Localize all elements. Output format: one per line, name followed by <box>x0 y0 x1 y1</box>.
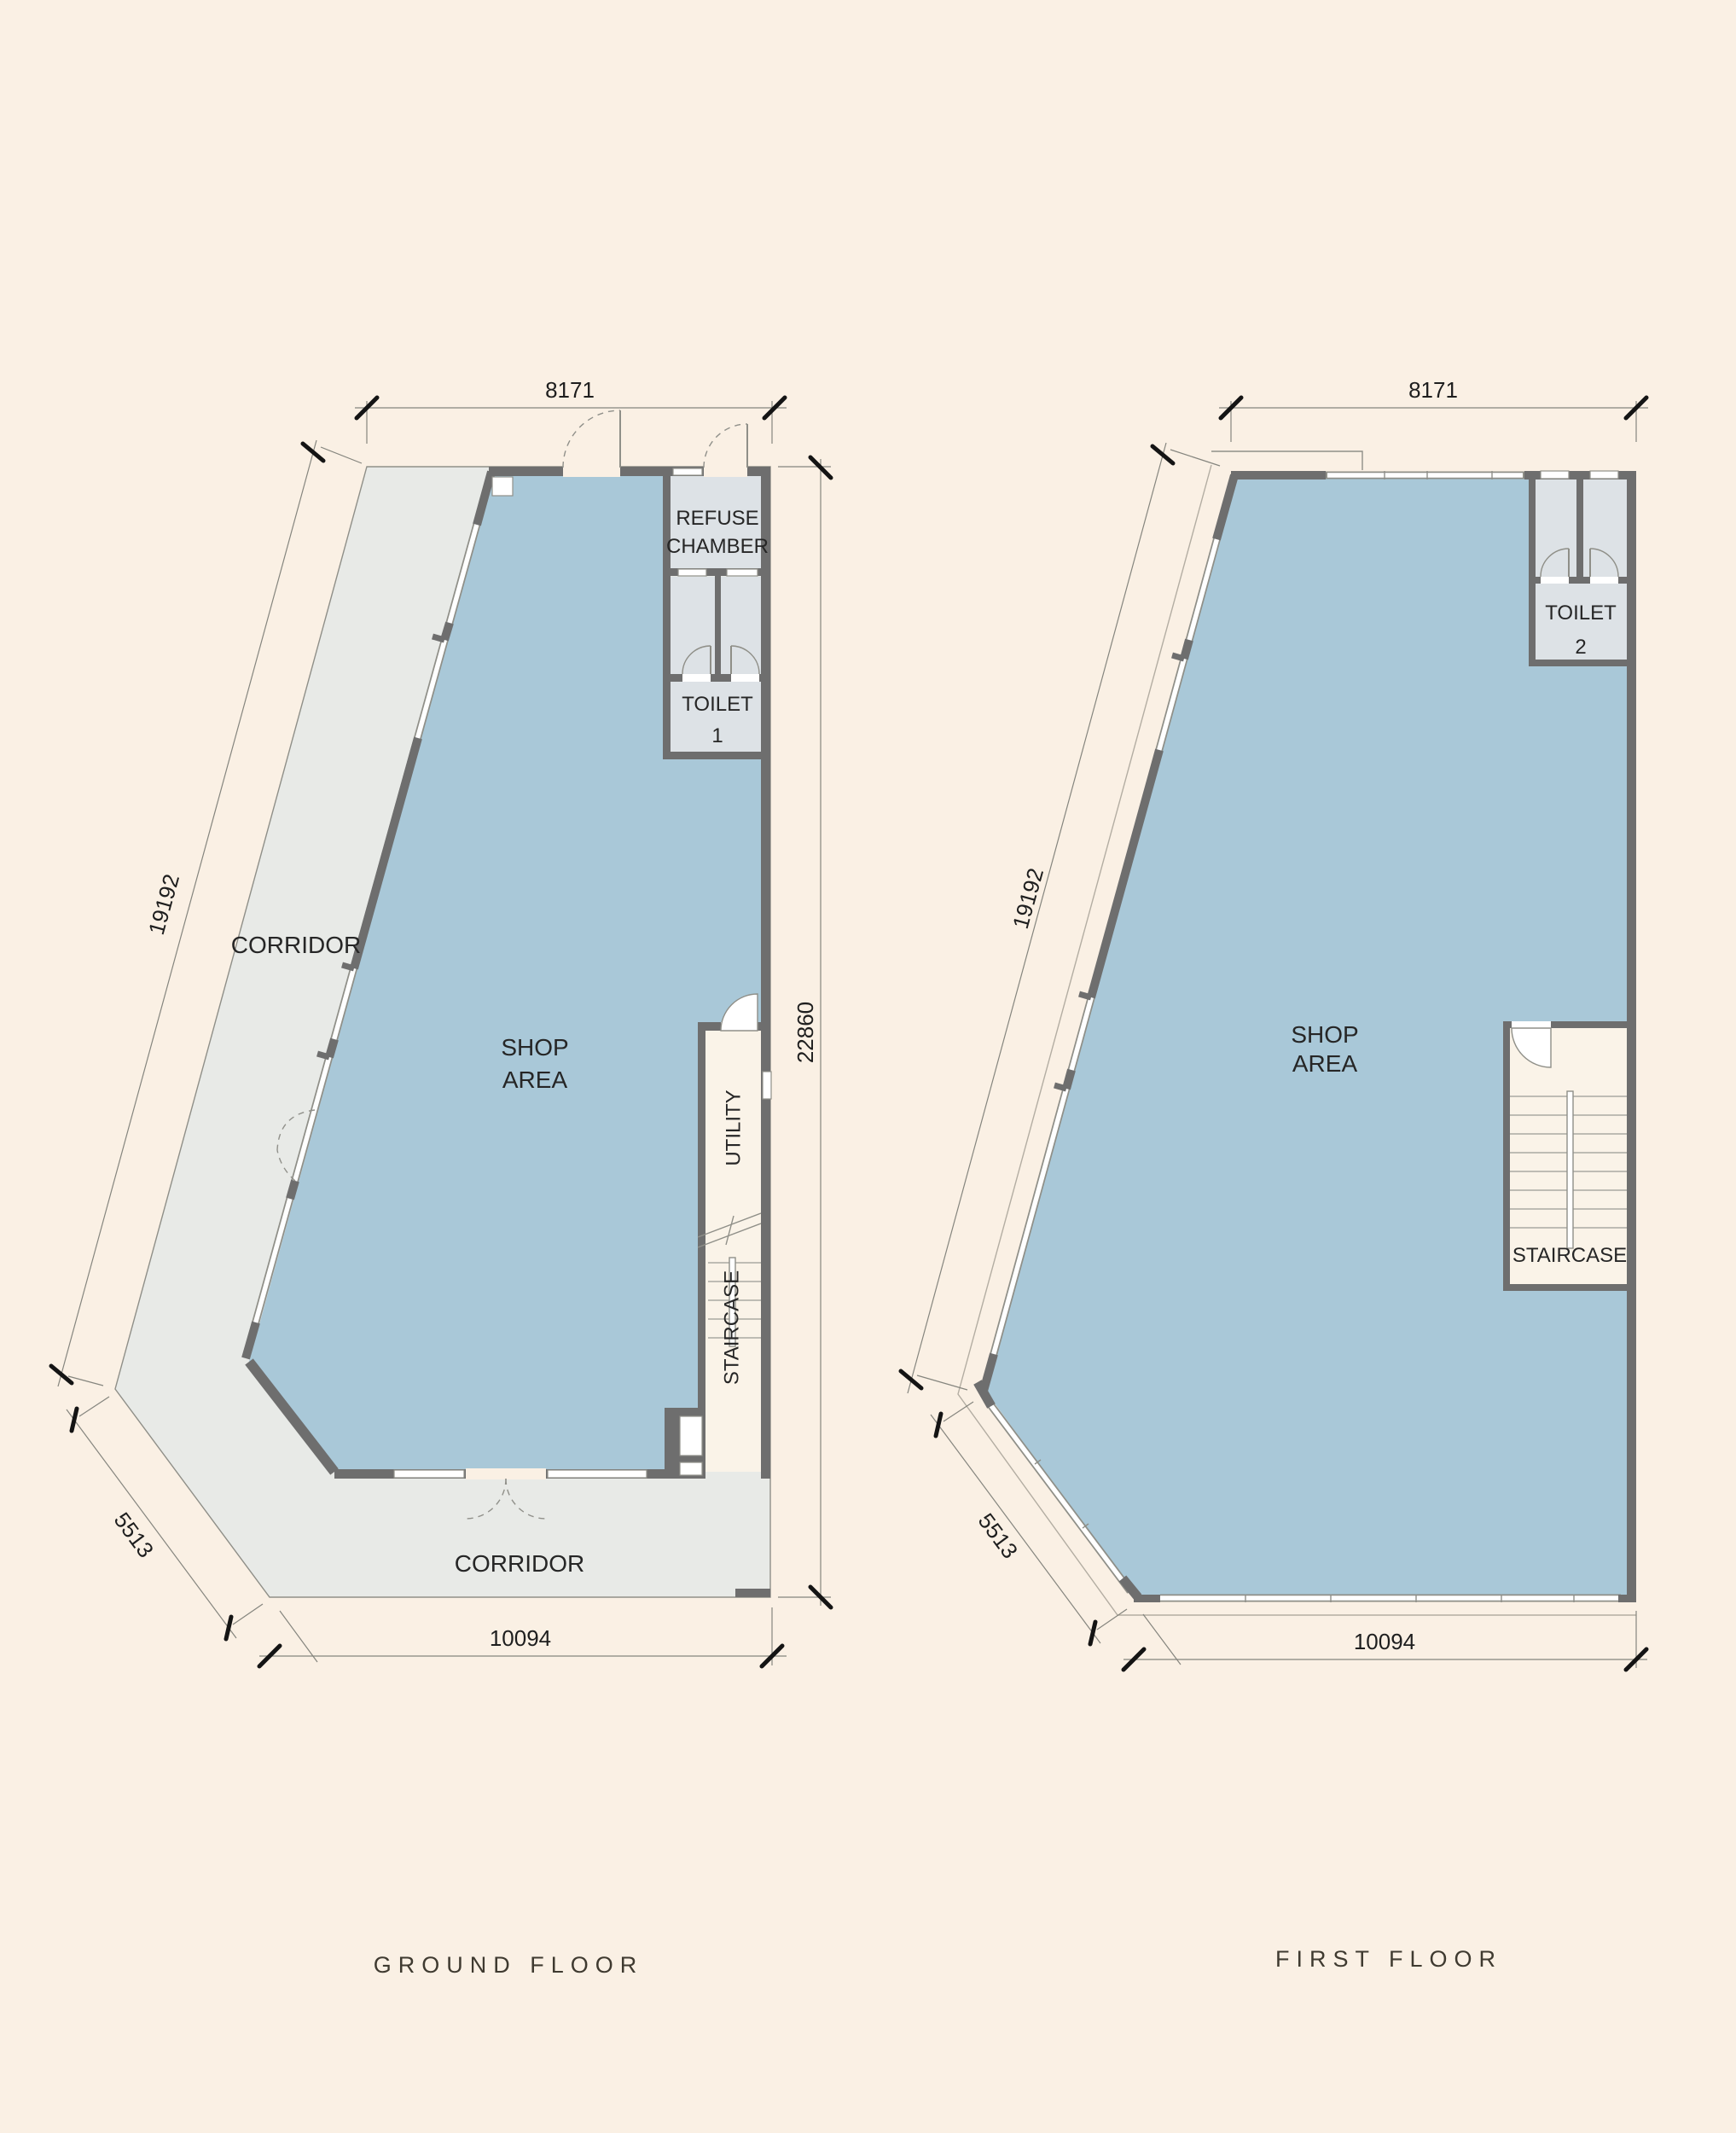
ground-corridor-bottom-label: CORRIDOR <box>455 1550 584 1577</box>
floor-plan-sheet: 8171 19192 22860 5513 10094 <box>0 0 1736 2133</box>
first-floor-plan: 8171 19192 5513 10094 SHOP AREA TOILET <box>901 377 1648 1972</box>
ground-shop-label-2: AREA <box>502 1066 568 1093</box>
floor-plan-drawing: 8171 19192 22860 5513 10094 <box>0 0 1736 2133</box>
first-staircase-label: STAIRCASE <box>1512 1244 1627 1267</box>
first-shop-label-2: AREA <box>1292 1050 1358 1077</box>
first-floor-title: FIRST FLOOR <box>1275 1946 1502 1972</box>
toilet2-label: TOILET <box>1545 602 1617 625</box>
first-shop-label-1: SHOP <box>1291 1021 1358 1048</box>
dim-first-diagonal: 5513 <box>973 1508 1024 1563</box>
ground-shop-label-1: SHOP <box>501 1034 568 1061</box>
utility-label: UTILITY <box>723 1090 746 1165</box>
refuse-chamber-label-2: CHAMBER <box>666 535 769 558</box>
dim-ground-top: 8171 <box>545 377 595 403</box>
toilet1-number: 1 <box>711 724 723 747</box>
dim-first-bottom: 10094 <box>1354 1629 1415 1654</box>
ground-floor-title: GROUND FLOOR <box>374 1952 644 1978</box>
ground-corridor-left-label: CORRIDOR <box>231 932 361 958</box>
toilet1-label: TOILET <box>682 693 753 716</box>
refuse-chamber-label-1: REFUSE <box>676 507 758 530</box>
dim-ground-diagonal: 5513 <box>109 1508 160 1562</box>
dim-ground-right: 22860 <box>793 1002 818 1063</box>
dim-ground-left: 19192 <box>143 871 184 938</box>
ground-staircase-label: STAIRCASE <box>721 1270 744 1385</box>
dim-first-top: 8171 <box>1408 377 1458 403</box>
toilet2-number: 2 <box>1575 636 1586 659</box>
dim-ground-bottom: 10094 <box>490 1625 551 1651</box>
ground-floor-plan: 8171 19192 22860 5513 10094 <box>51 377 831 1978</box>
